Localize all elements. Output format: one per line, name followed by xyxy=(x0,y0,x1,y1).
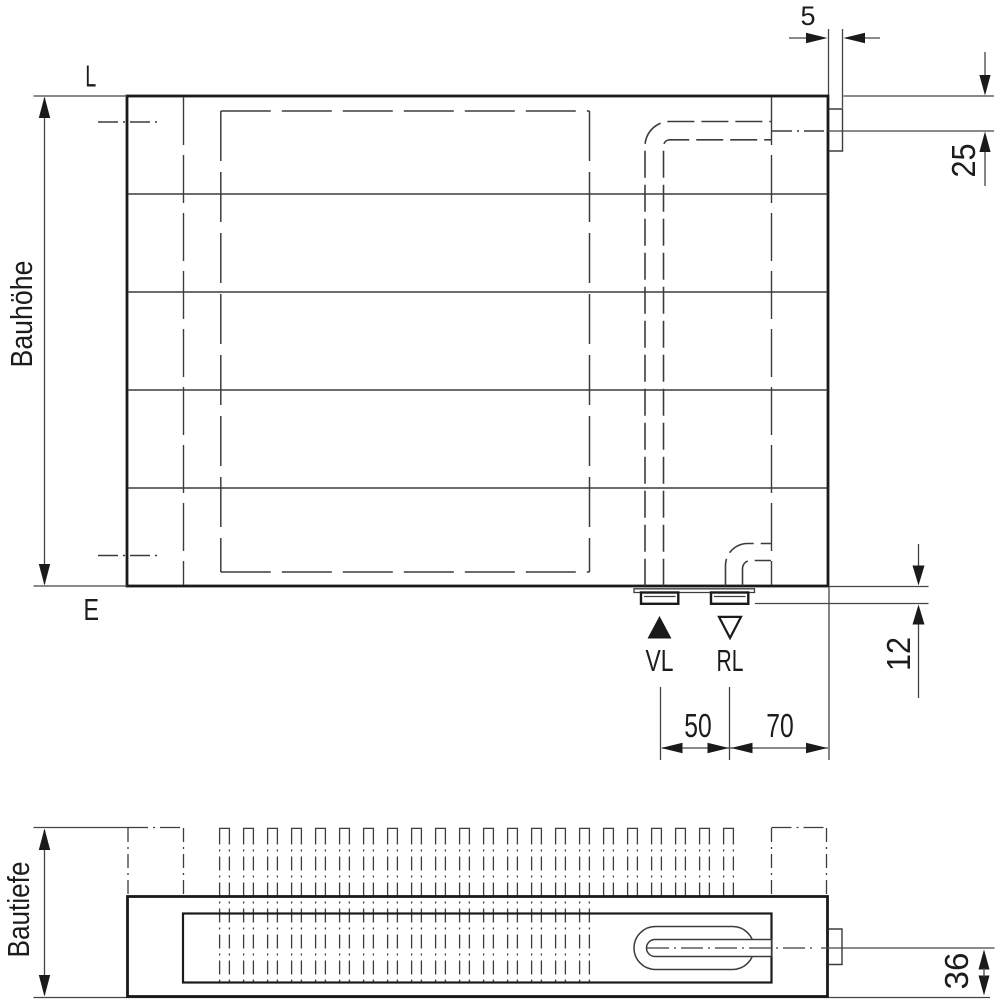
svg-text:Bautiefe: Bautiefe xyxy=(1,862,36,958)
svg-text:25: 25 xyxy=(945,144,982,178)
svg-text:VL: VL xyxy=(646,643,674,678)
svg-text:12: 12 xyxy=(880,637,917,671)
svg-text:Bauhöhe: Bauhöhe xyxy=(4,261,39,368)
svg-text:L: L xyxy=(85,59,96,94)
svg-text:5: 5 xyxy=(800,1,815,31)
svg-text:70: 70 xyxy=(766,707,794,744)
svg-text:50: 50 xyxy=(684,707,712,744)
svg-text:E: E xyxy=(84,592,100,627)
svg-text:RL: RL xyxy=(717,643,744,678)
svg-text:36: 36 xyxy=(938,953,975,990)
